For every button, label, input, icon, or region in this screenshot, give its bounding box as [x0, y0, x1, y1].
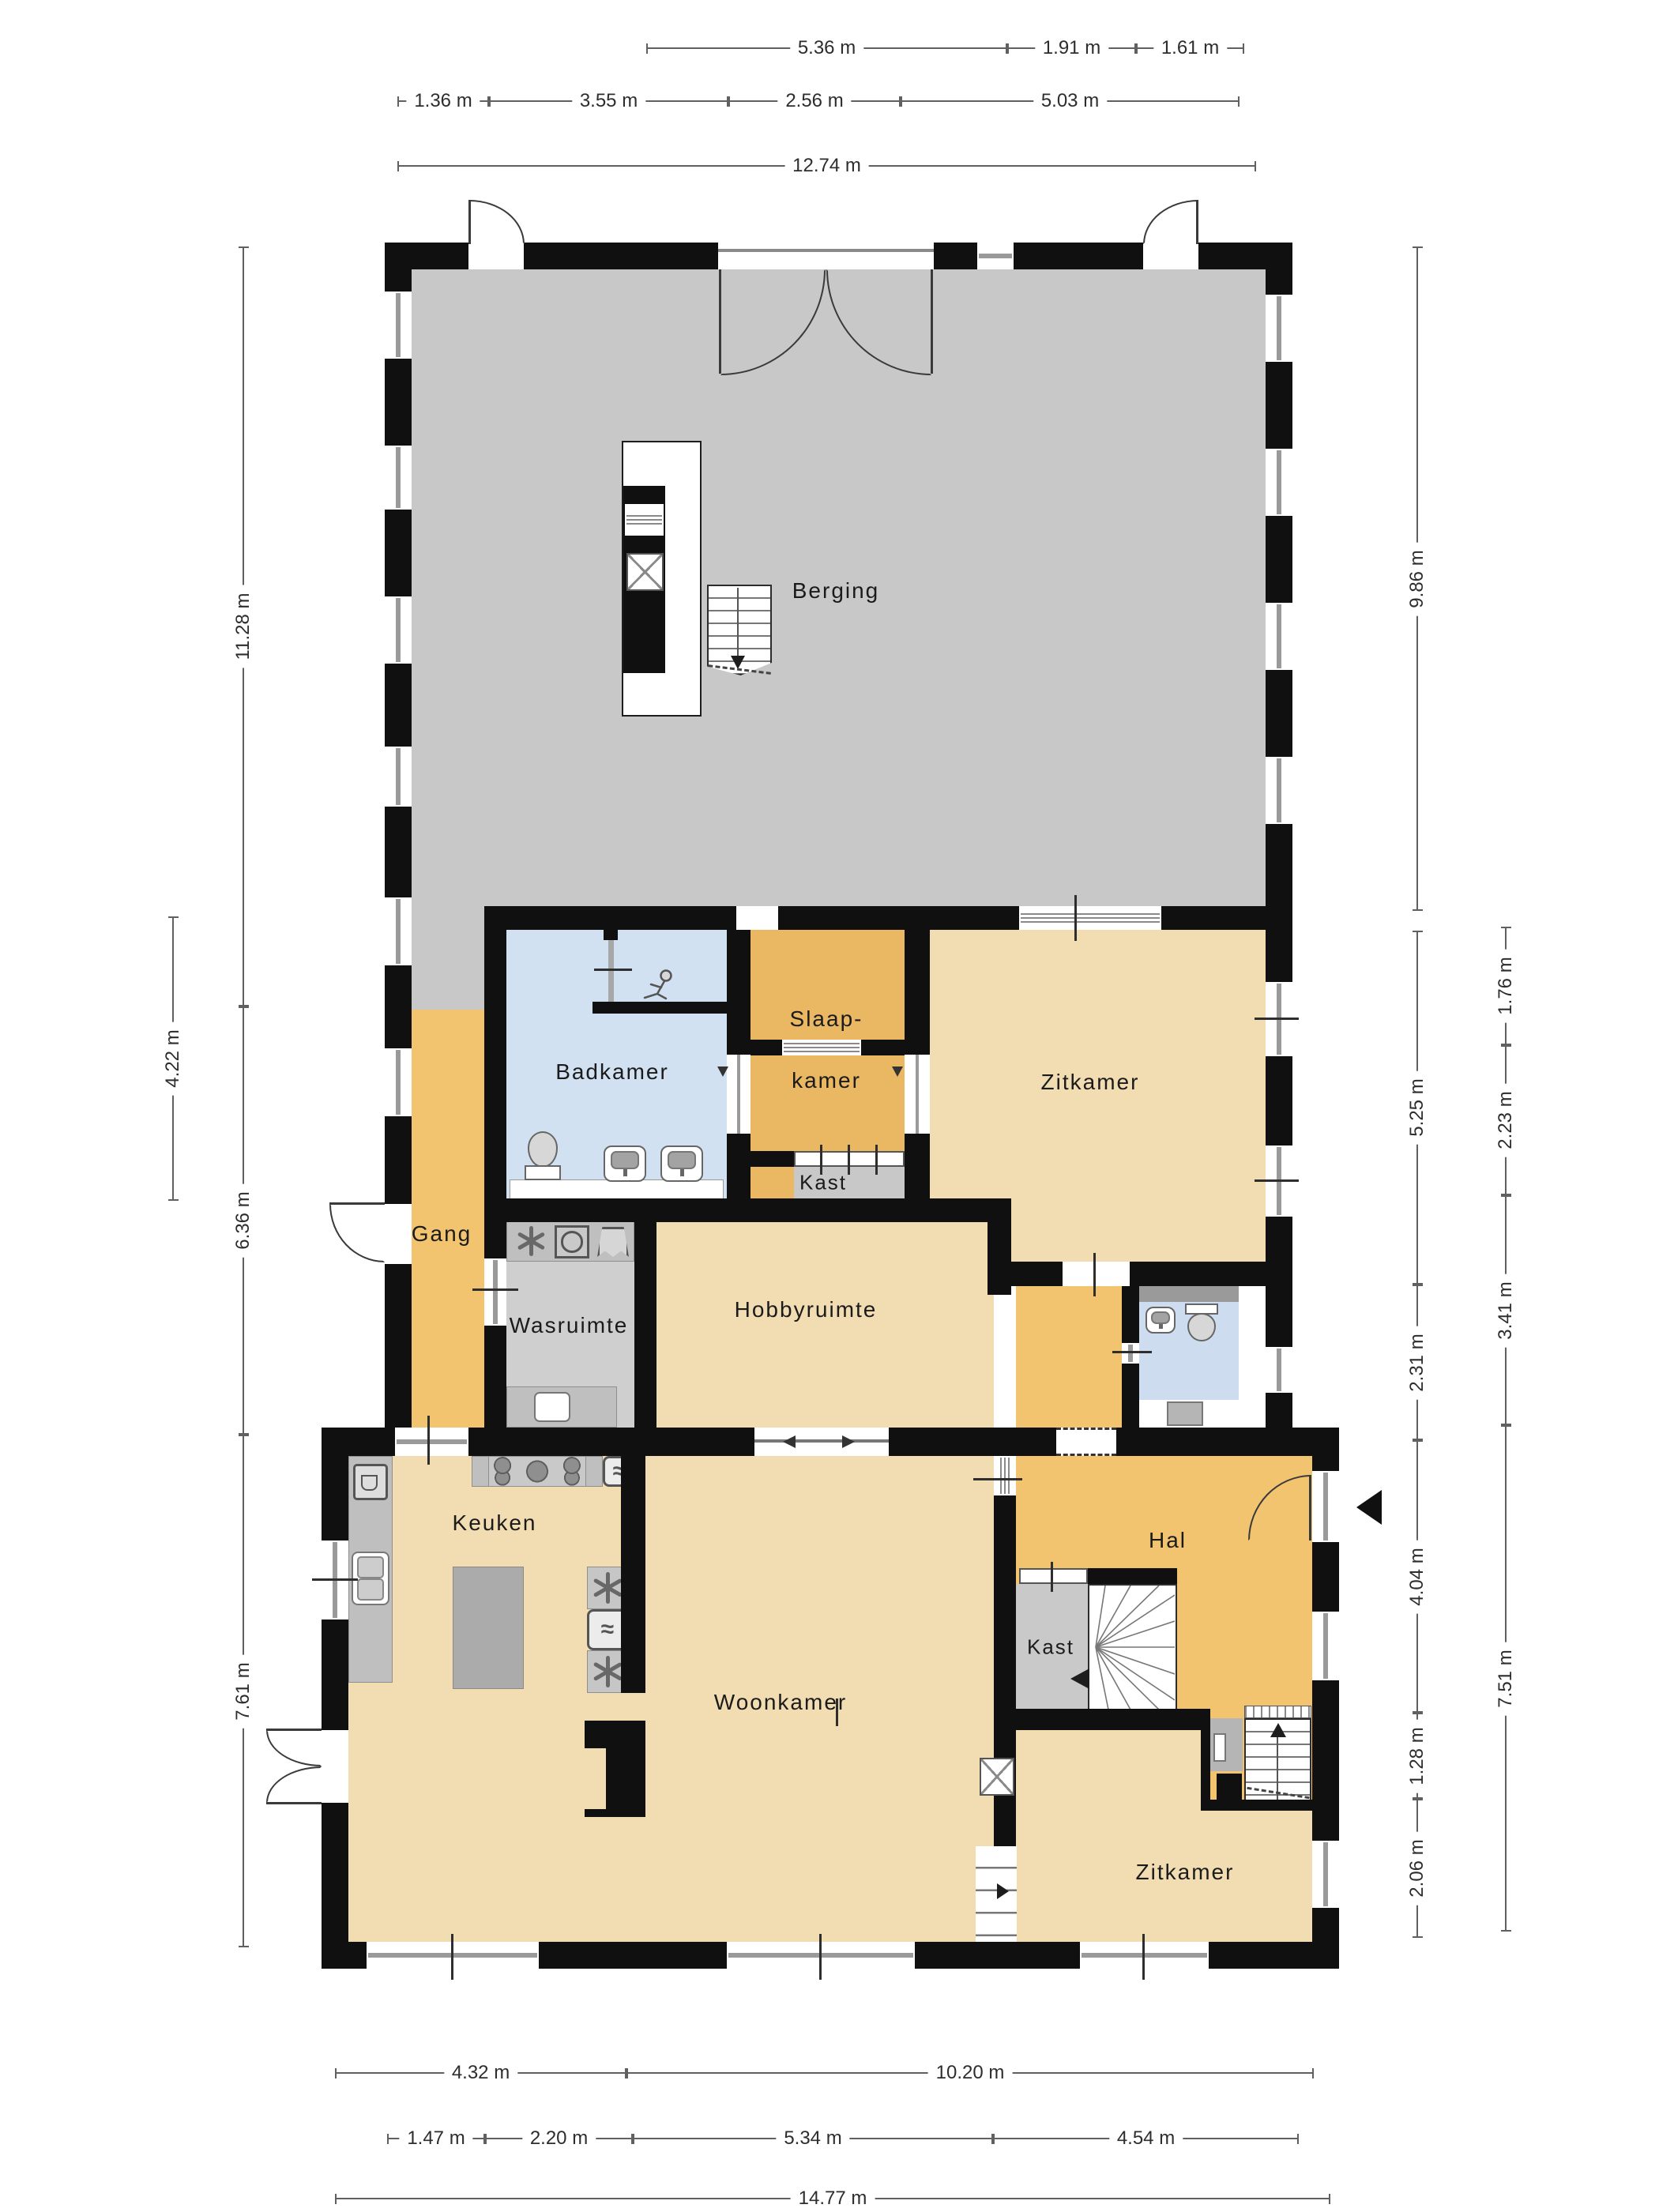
door-arc	[1143, 200, 1198, 244]
oven-glyph: ≈	[601, 1616, 614, 1643]
dimension: 10.20 m	[626, 2072, 1314, 2074]
sink-icon	[604, 1145, 646, 1182]
toiletruimte-cabinet	[1138, 1286, 1239, 1302]
door-arc	[266, 1730, 322, 1766]
shower-person-icon	[640, 969, 676, 1003]
dimension: 7.51 m	[1505, 1425, 1507, 1932]
wall	[484, 906, 506, 1430]
dashed-opening	[1056, 1428, 1116, 1456]
toilet-tank	[1185, 1303, 1218, 1315]
laundry-icon	[597, 1227, 629, 1257]
window-tick	[427, 1416, 430, 1465]
wall	[621, 1456, 645, 1693]
window-tick	[1142, 1934, 1145, 1980]
wall	[385, 243, 412, 1456]
wall	[634, 1209, 656, 1428]
dimension: 14.77 m	[335, 2198, 1330, 2199]
wall	[524, 243, 718, 269]
stairs-top-band	[1244, 1706, 1311, 1718]
glass-door	[484, 1258, 506, 1326]
dimension: 1.76 m	[1505, 927, 1507, 1045]
window	[385, 1048, 412, 1116]
window	[1266, 757, 1292, 824]
wall	[1266, 243, 1292, 1428]
door-frame-line	[718, 249, 934, 252]
room-label-zitkamer-beneden: Zitkamer	[1136, 1860, 1235, 1885]
wall	[1011, 1262, 1266, 1286]
closet-front	[1019, 1568, 1088, 1584]
berging-shaft-icon	[626, 553, 664, 591]
floor-berging-strip	[412, 906, 484, 1010]
wall	[322, 1428, 348, 1969]
room-label-kast-hal: Kast	[1027, 1635, 1074, 1660]
wall	[1088, 1568, 1177, 1584]
shower-glass	[608, 940, 614, 1003]
window	[385, 446, 412, 510]
wall	[1201, 1709, 1210, 1811]
toiletruimte-shower-tray	[1167, 1401, 1203, 1426]
window	[977, 243, 1014, 269]
wall	[934, 243, 977, 269]
window-tick	[594, 969, 632, 971]
freezer-fan-icon	[592, 1654, 623, 1689]
dimension: 2.31 m	[1416, 1285, 1418, 1440]
washing-machine-icon	[555, 1225, 589, 1258]
dimension: 12.74 m	[397, 165, 1256, 167]
wall	[506, 1198, 1011, 1222]
sliding-door-rail	[754, 1439, 889, 1443]
door-arc	[329, 1204, 385, 1262]
stairs-up-arrow-icon	[1270, 1721, 1286, 1737]
winder-treads	[1089, 1586, 1175, 1710]
shower-wall	[592, 1002, 731, 1014]
dimension: 1.47 m	[387, 2138, 485, 2139]
window	[385, 747, 412, 807]
dimension: 1.91 m	[1007, 47, 1136, 49]
winder-stairs	[1088, 1584, 1177, 1712]
floor-hobbyruimte	[656, 1222, 994, 1428]
window-tick	[1255, 1179, 1299, 1182]
dimension: 2.56 m	[728, 100, 901, 102]
toilet-icon	[525, 1131, 561, 1180]
room-label-berging: Berging	[792, 578, 880, 604]
interior-window	[1122, 1343, 1139, 1364]
dimension: 5.36 m	[646, 47, 1007, 49]
entry-arrow-icon	[1354, 1490, 1382, 1525]
sliding-arrow-right-icon	[842, 1435, 857, 1448]
toilet-icon	[1185, 1303, 1218, 1341]
sink-icon	[1145, 1307, 1176, 1334]
dimension: 3.55 m	[489, 100, 728, 102]
window	[385, 596, 412, 664]
window	[1312, 1612, 1339, 1680]
passage-opening	[1063, 1262, 1130, 1286]
window	[395, 1428, 468, 1456]
dimension: 2.20 m	[485, 2138, 633, 2139]
dimension: 1.28 m	[1416, 1713, 1418, 1799]
stair-block	[1217, 1774, 1242, 1801]
window	[1266, 295, 1292, 362]
window	[385, 897, 412, 965]
room-label-wasruimte: Wasruimte	[510, 1313, 629, 1338]
closet-tick	[848, 1145, 850, 1175]
dimension: 2.23 m	[1505, 1045, 1507, 1195]
door-opening	[468, 243, 524, 269]
window	[385, 292, 412, 359]
room-label-hobbyruimte: Hobbyruimte	[735, 1297, 878, 1322]
fridge-fan-icon	[592, 1571, 623, 1605]
floor-plan: ≈ ≈	[0, 0, 1659, 2212]
interior-window	[782, 1040, 861, 1055]
dimension: 1.36 m	[397, 100, 489, 102]
door-swing-arrow-icon	[892, 1066, 903, 1079]
dryer-fan-icon	[515, 1224, 547, 1258]
closet-tick	[1051, 1562, 1053, 1592]
window-tick	[312, 1578, 358, 1581]
room-label-slaapkamer-1: Slaap-	[790, 1006, 863, 1032]
wasruimte-sink	[534, 1392, 570, 1422]
interior-glass	[994, 1456, 1016, 1495]
coffee-machine-icon	[353, 1464, 388, 1500]
sink-icon	[660, 1145, 703, 1182]
door-swing-arrow-icon	[717, 1066, 728, 1079]
floor-keuken-woonkamer	[348, 1456, 994, 1942]
wall	[987, 1222, 1011, 1295]
window	[1266, 1347, 1292, 1393]
dimension: 3.41 m	[1505, 1195, 1507, 1425]
toilet-bowl	[1187, 1313, 1215, 1341]
room-label-keuken: Keuken	[453, 1510, 537, 1536]
floor-zitkamer-beneden	[1016, 1730, 1201, 1942]
dimension: 5.25 m	[1416, 931, 1418, 1285]
window	[1266, 449, 1292, 516]
entry-sidelight	[1312, 1471, 1339, 1542]
dimension: 5.03 m	[901, 100, 1240, 102]
dimension: 9.86 m	[1416, 246, 1418, 911]
dimension: 4.32 m	[335, 2072, 626, 2074]
gas-hob-icon	[488, 1456, 586, 1487]
dimension: 2.06 m	[1416, 1799, 1418, 1938]
room-label-zitkamer-boven: Zitkamer	[1041, 1070, 1140, 1095]
radiator-icon	[1213, 1733, 1226, 1762]
room-label-gang: Gang	[412, 1221, 472, 1247]
window	[1312, 1841, 1339, 1908]
dimension: 11.28 m	[243, 246, 244, 1006]
room-label-hal: Hal	[1149, 1528, 1187, 1553]
door-line	[916, 1055, 919, 1134]
wall	[750, 1040, 782, 1055]
dimension: 1.61 m	[1136, 47, 1244, 49]
badkamer-vanity	[510, 1179, 724, 1200]
closet-tick	[875, 1145, 878, 1175]
window	[1266, 603, 1292, 670]
dimension: 6.36 m	[243, 1006, 244, 1435]
berging-island-window	[625, 504, 664, 536]
room-label-kast-boven: Kast	[799, 1171, 847, 1195]
french-door-opening	[322, 1730, 348, 1803]
dimension: 7.61 m	[243, 1435, 244, 1947]
wall	[750, 1151, 794, 1167]
wall	[861, 1040, 905, 1055]
wall	[994, 1709, 1201, 1730]
floor-gang	[412, 1010, 484, 1428]
window-tick	[1093, 1253, 1096, 1296]
window-tick	[472, 1288, 518, 1291]
chimney-notch	[585, 1748, 606, 1809]
sliding-arrow-left-icon	[781, 1435, 796, 1448]
door-arc	[266, 1766, 322, 1803]
door-opening	[736, 906, 778, 930]
door-arc	[469, 200, 525, 244]
floor-tussenkamer	[1016, 1286, 1122, 1428]
window-tick	[819, 1934, 822, 1980]
dimension: 4.54 m	[993, 2138, 1299, 2139]
interior-window	[1019, 906, 1161, 930]
window-tick	[1074, 895, 1077, 941]
double-door-opening	[718, 243, 934, 269]
window-tick	[1112, 1351, 1152, 1353]
toilet-bowl	[528, 1131, 559, 1168]
window-tick	[1255, 1018, 1299, 1020]
dimension: 4.22 m	[172, 916, 174, 1201]
dimension: 5.34 m	[633, 2138, 993, 2139]
room-label-slaapkamer-2: kamer	[792, 1068, 861, 1093]
wall	[1014, 243, 1143, 269]
window-tick	[973, 1478, 1022, 1480]
door-opening	[1143, 243, 1198, 269]
door-line	[737, 1055, 740, 1134]
dimension: 4.04 m	[1416, 1440, 1418, 1713]
winder-stairs-arrow-icon	[1068, 1668, 1089, 1689]
shaft-icon	[980, 1758, 1014, 1796]
toilet-tank	[525, 1165, 561, 1180]
door-opening	[385, 1204, 412, 1264]
room-label-woonkamer: Woonkamer	[714, 1690, 847, 1715]
keuken-island	[453, 1567, 524, 1689]
berging-stairs-centerline	[737, 588, 739, 657]
steps-right-arrow-icon	[997, 1883, 1011, 1899]
window-tick	[451, 1934, 453, 1980]
wall	[1201, 1800, 1312, 1811]
room-label-badkamer: Badkamer	[555, 1059, 669, 1085]
